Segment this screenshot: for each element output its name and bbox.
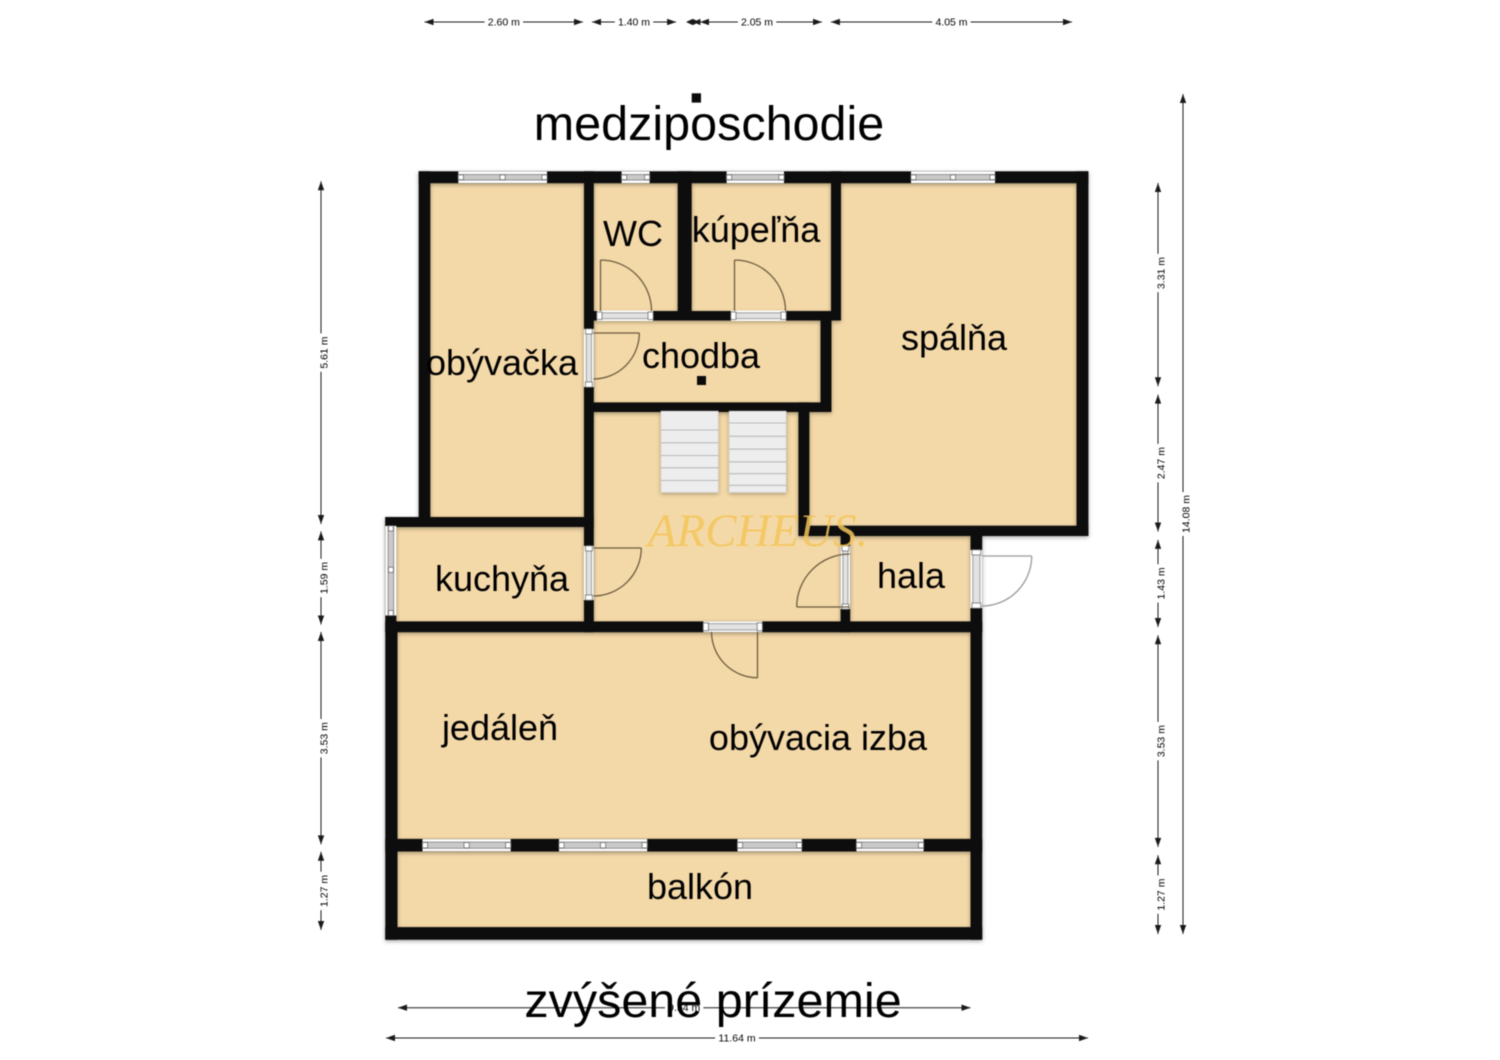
svg-text:5.61 m: 5.61 m: [318, 336, 330, 368]
svg-text:4.05 m: 4.05 m: [935, 17, 967, 29]
svg-text:hala: hala: [877, 555, 946, 596]
svg-text:3.53 m: 3.53 m: [1155, 725, 1167, 757]
svg-text:1.43 m: 1.43 m: [1155, 567, 1167, 599]
svg-text:1.59 m: 1.59 m: [318, 562, 330, 594]
svg-text:balkón: balkón: [647, 866, 753, 907]
svg-text:zvýšené prízemie: zvýšené prízemie: [524, 974, 901, 1028]
svg-text:2.05 m: 2.05 m: [741, 17, 773, 29]
svg-text:2.60 m: 2.60 m: [488, 17, 520, 29]
svg-text:obývačka: obývačka: [426, 342, 579, 383]
svg-text:jedáleň: jedáleň: [441, 707, 558, 748]
svg-text:2.47 m: 2.47 m: [1155, 447, 1167, 479]
svg-text:1.27 m: 1.27 m: [318, 875, 330, 907]
svg-text:medziposchodie: medziposchodie: [534, 97, 885, 151]
svg-text:1.40 m: 1.40 m: [618, 17, 650, 29]
svg-text:11.64 m: 11.64 m: [718, 1033, 755, 1045]
svg-text:1.27 m: 1.27 m: [1155, 878, 1167, 910]
svg-text:kúpeľňa: kúpeľňa: [692, 209, 822, 250]
svg-text:3.31 m: 3.31 m: [1155, 257, 1167, 289]
svg-text:WC: WC: [603, 213, 663, 254]
svg-text:14.08 m: 14.08 m: [1180, 495, 1192, 533]
svg-text:3.53 m: 3.53 m: [318, 722, 330, 754]
svg-text:kuchyňa: kuchyňa: [435, 558, 570, 599]
svg-text:obývacia izba: obývacia izba: [709, 717, 928, 758]
svg-text:ARCHEUS.: ARCHEUS.: [645, 505, 869, 557]
svg-text:chodba: chodba: [642, 335, 761, 376]
svg-text:spálňa: spálňa: [901, 317, 1008, 358]
